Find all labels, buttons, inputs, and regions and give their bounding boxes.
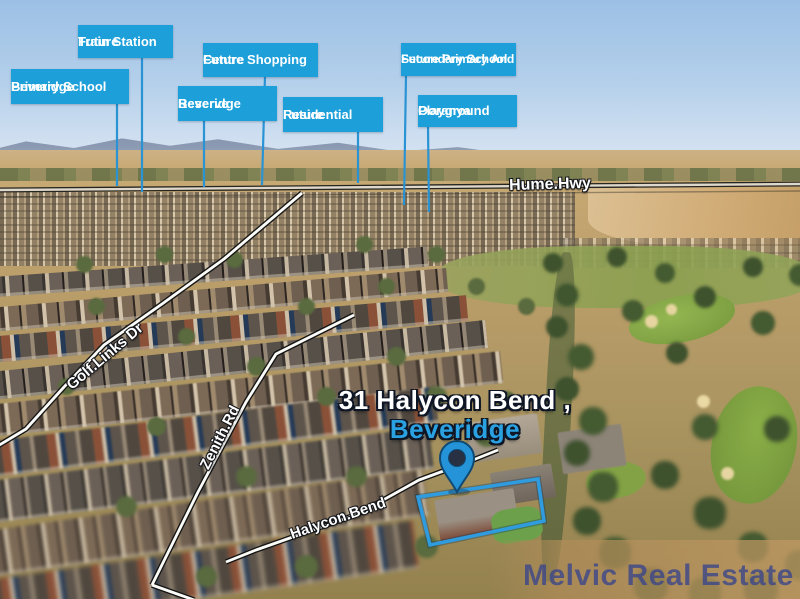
property-address-line: 31 Halycon Bend , bbox=[330, 385, 580, 416]
callout-future-residential: Future Residential bbox=[283, 97, 383, 132]
callout-ooranya-playground: Ooranya Playground bbox=[418, 95, 517, 127]
callout-text: Reserve bbox=[178, 96, 229, 112]
callout-text: Train Station bbox=[78, 34, 157, 50]
agency-watermark: Melvic Real Estate bbox=[523, 559, 800, 593]
callout-beveridge-primary-school: Beveridge Primary School bbox=[11, 69, 129, 104]
callout-future-primary-secondary-school: Future Primary And Secondary School bbox=[401, 43, 516, 76]
callout-text: Secondary School bbox=[401, 52, 507, 67]
highway-label: Hume.Hwy bbox=[508, 175, 592, 195]
callout-future-train-station: Future Train Station bbox=[78, 25, 173, 58]
callout-text: Centre bbox=[203, 52, 244, 68]
callout-future-shopping-centre: Future Shopping Centre bbox=[203, 43, 318, 77]
callout-text: Primary School bbox=[11, 79, 106, 95]
property-boundary bbox=[418, 479, 544, 545]
highway-line bbox=[0, 184, 800, 197]
road-zenith bbox=[152, 315, 354, 585]
callout-beveridge-reserve: Beveridge Reserve bbox=[178, 86, 277, 121]
aerial-property-map: Future Train Station Beveridge Primary S… bbox=[0, 0, 800, 599]
callout-text: Residential bbox=[283, 107, 352, 123]
property-suburb-line: Beveridge bbox=[330, 414, 580, 445]
callout-text: Playground bbox=[418, 103, 490, 119]
